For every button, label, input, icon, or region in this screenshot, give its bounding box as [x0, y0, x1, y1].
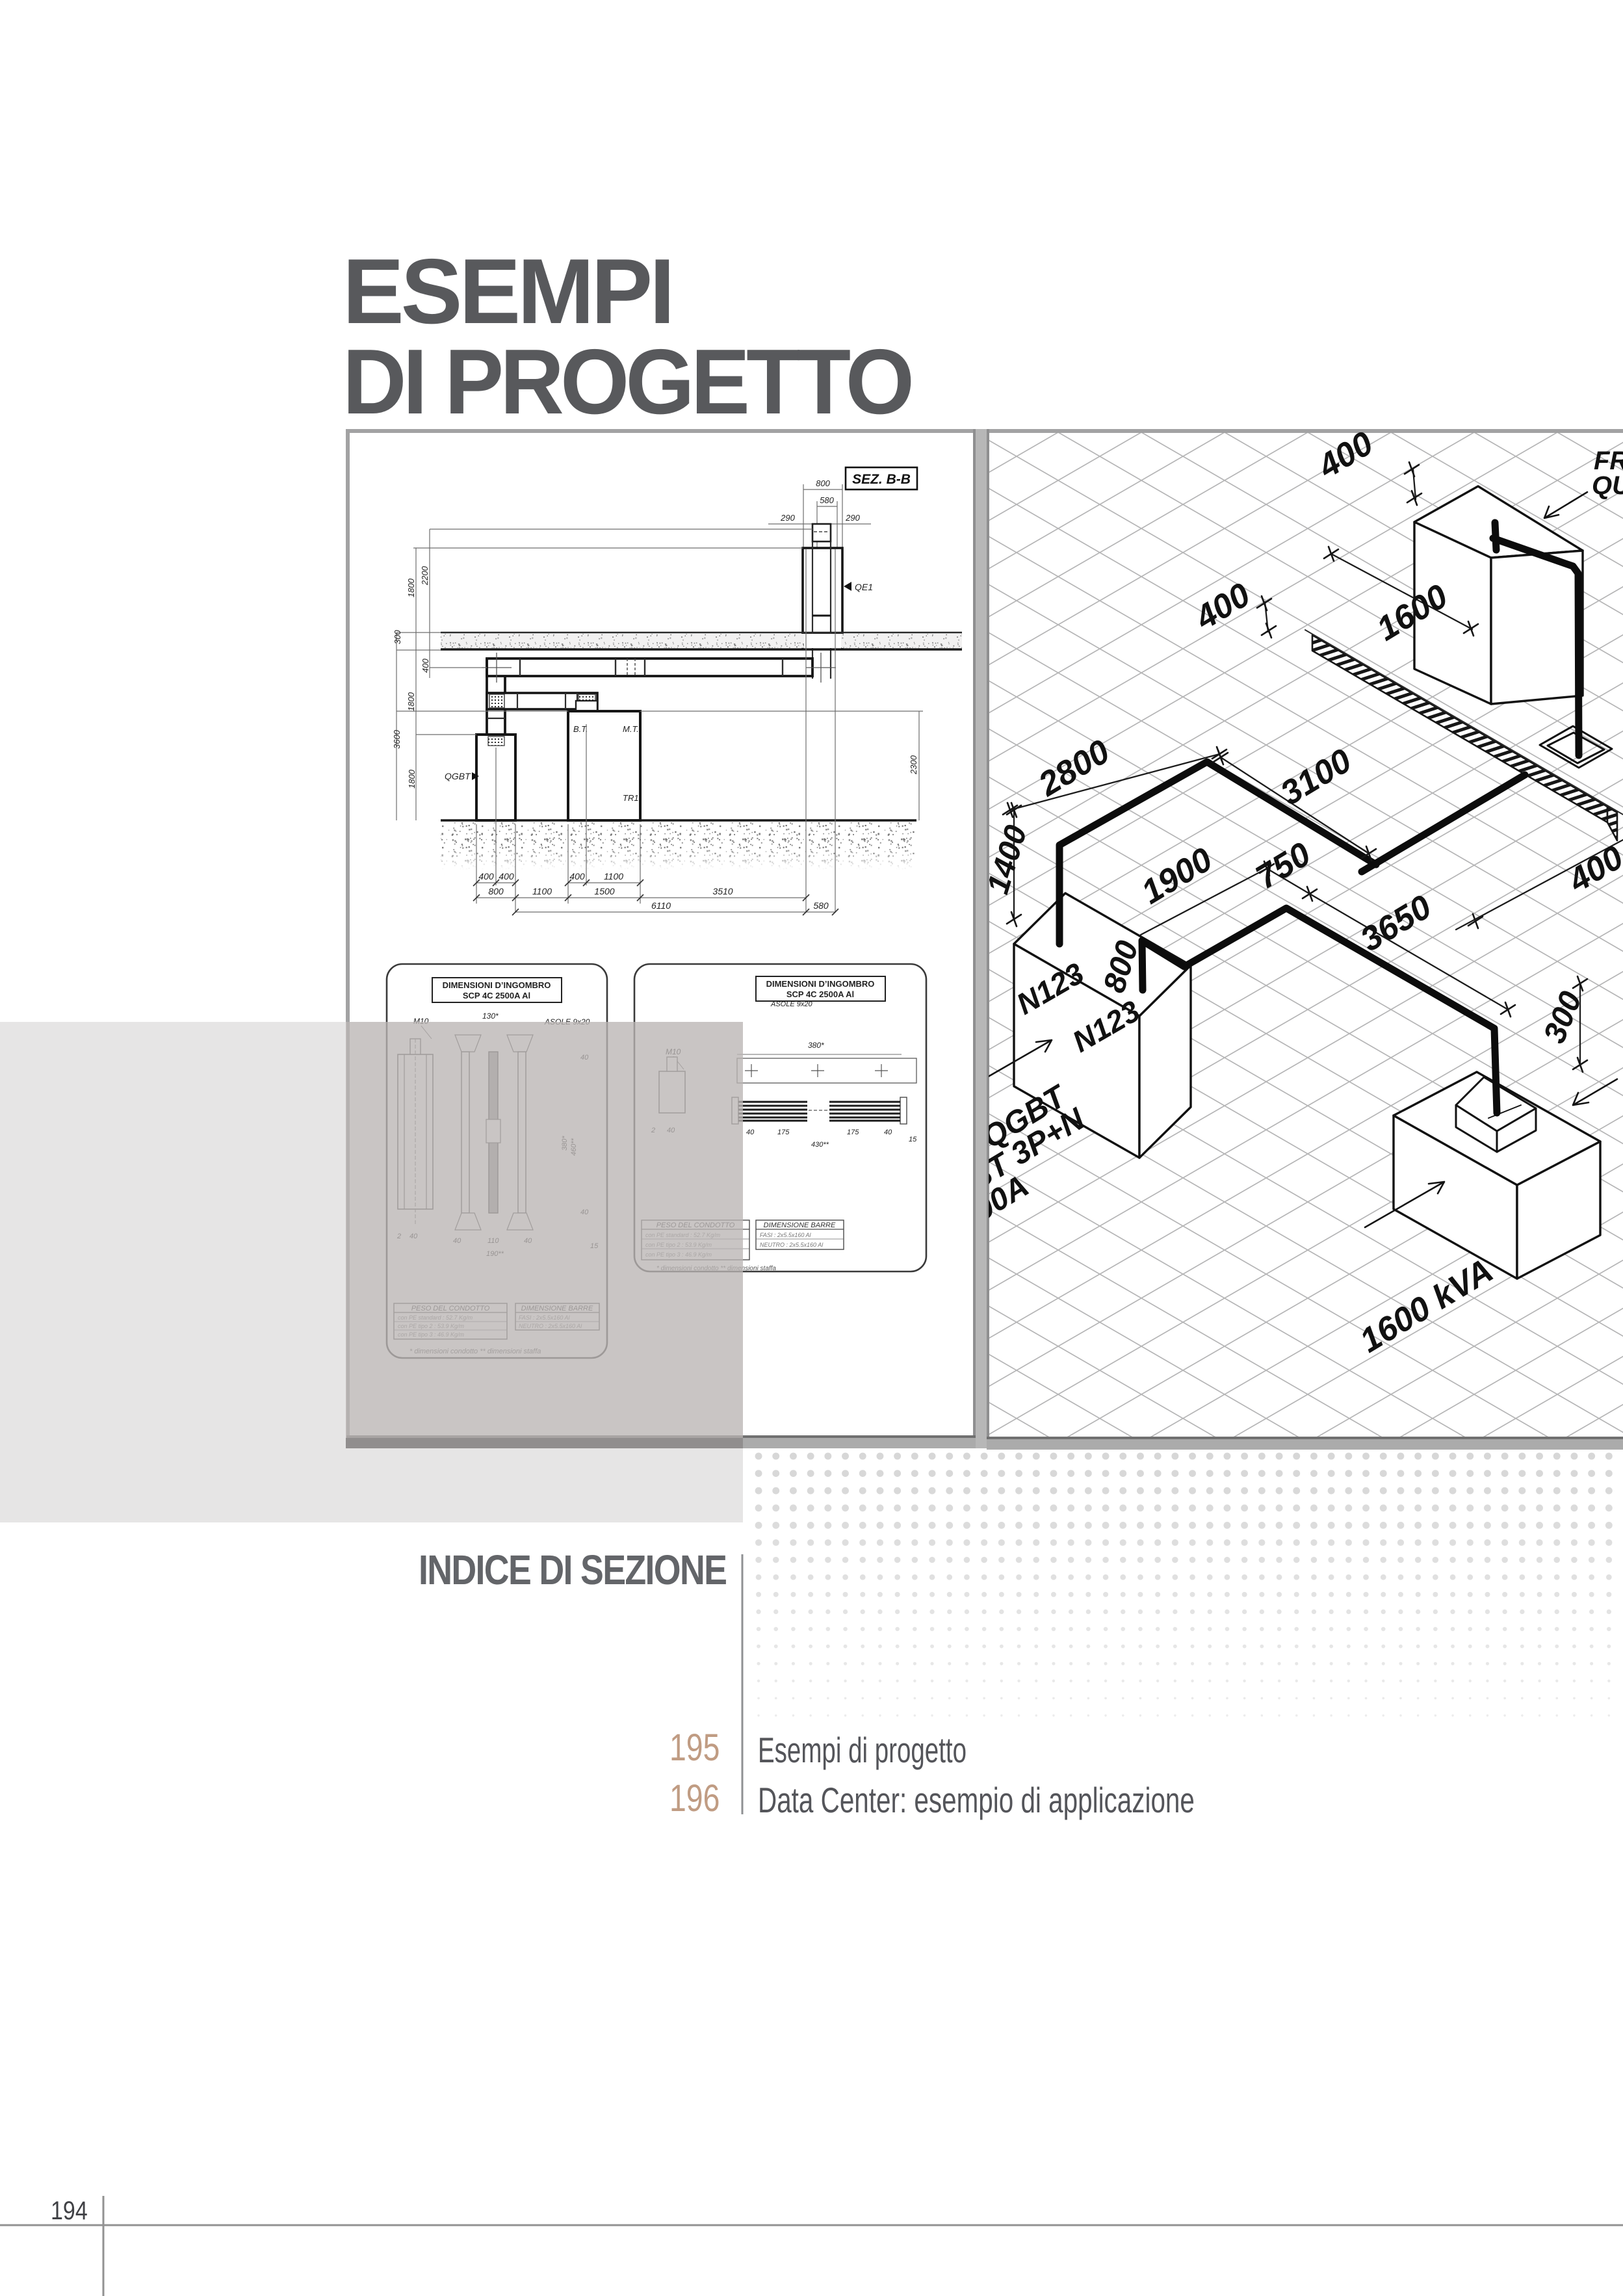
svg-text:SCP 4C 2500A Al: SCP 4C 2500A Al: [786, 989, 854, 999]
svg-text:290: 290: [845, 513, 860, 523]
svg-text:B.T.: B.T.: [573, 724, 588, 734]
svg-text:6110: 6110: [651, 900, 671, 911]
svg-text:300: 300: [393, 630, 402, 644]
svg-text:2200: 2200: [420, 566, 430, 586]
svg-text:400: 400: [478, 871, 494, 881]
svg-text:400: 400: [499, 871, 514, 881]
svg-text:3510: 3510: [712, 886, 733, 896]
svg-text:QU: QU: [1592, 471, 1623, 500]
svg-text:QGBT: QGBT: [445, 771, 471, 781]
svg-text:SEZ. B-B: SEZ. B-B: [852, 472, 911, 487]
svg-text:QE1: QE1: [855, 582, 873, 592]
svg-text:40: 40: [884, 1128, 892, 1136]
svg-text:430**: 430**: [811, 1141, 829, 1149]
svg-text:1800: 1800: [406, 578, 416, 597]
svg-text:175: 175: [847, 1128, 859, 1136]
svg-text:580: 580: [813, 900, 829, 911]
svg-text:15: 15: [909, 1136, 917, 1143]
svg-text:NEUTRO : 2x5.5x160 Al: NEUTRO : 2x5.5x160 Al: [760, 1242, 824, 1248]
svg-text:400: 400: [421, 659, 430, 673]
svg-text:3600: 3600: [392, 729, 402, 749]
svg-text:DIMENSIONI D’INGOMBRO: DIMENSIONI D’INGOMBRO: [766, 979, 875, 989]
svg-text:DIMENSIONI D’INGOMBRO: DIMENSIONI D’INGOMBRO: [443, 980, 551, 990]
svg-text:40: 40: [746, 1128, 755, 1136]
svg-text:ASOLE 9x20: ASOLE 9x20: [770, 1000, 812, 1008]
svg-text:580: 580: [820, 495, 834, 505]
svg-text:130*: 130*: [482, 1011, 499, 1021]
svg-text:TR1: TR1: [623, 793, 639, 803]
svg-text:M.T.: M.T.: [623, 724, 639, 734]
svg-text:1500: 1500: [594, 886, 614, 896]
svg-text:290: 290: [780, 513, 795, 523]
svg-text:2300: 2300: [909, 755, 918, 775]
svg-text:175: 175: [777, 1128, 790, 1136]
svg-text:SCP 4C 2500A Al: SCP 4C 2500A Al: [463, 991, 530, 1000]
svg-text:DIMENSIONE BARRE: DIMENSIONE BARRE: [764, 1221, 836, 1229]
svg-text:380*: 380*: [808, 1041, 824, 1050]
svg-text:1800: 1800: [406, 692, 416, 711]
svg-text:1800: 1800: [407, 769, 417, 789]
svg-text:800: 800: [488, 886, 504, 896]
svg-text:1100: 1100: [532, 886, 552, 896]
svg-text:1100: 1100: [604, 871, 623, 881]
svg-text:400: 400: [569, 871, 585, 881]
svg-text:FASI : 2x5.5x160 Al: FASI : 2x5.5x160 Al: [760, 1232, 812, 1238]
svg-text:800: 800: [816, 478, 830, 488]
